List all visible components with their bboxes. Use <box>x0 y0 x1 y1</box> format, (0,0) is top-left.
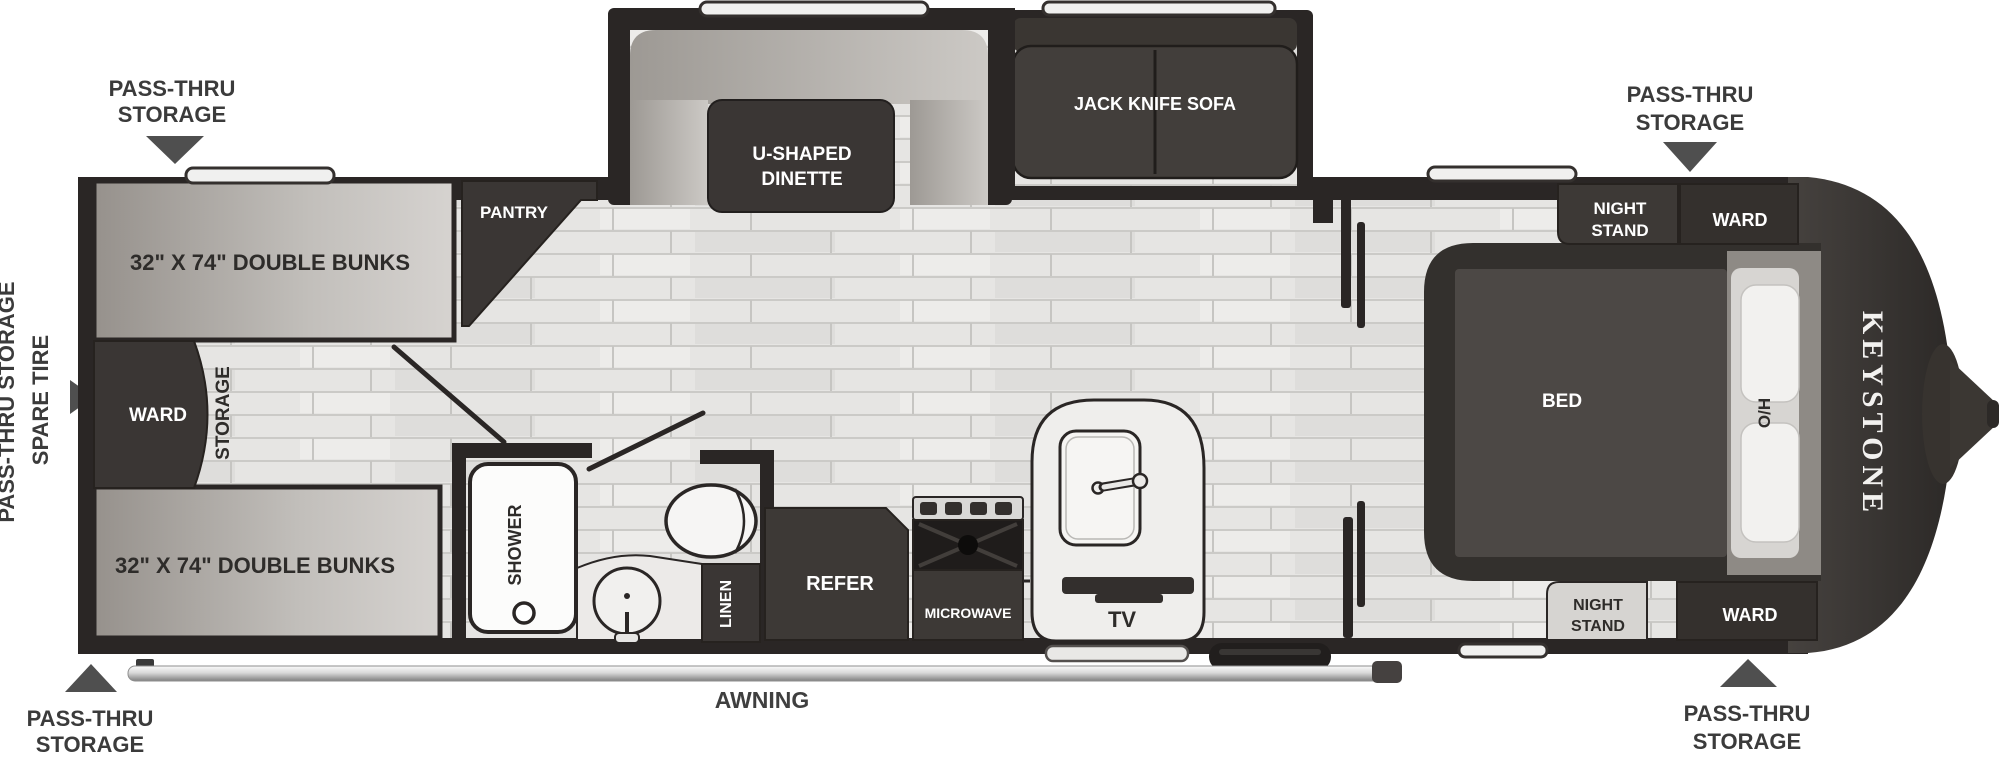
tv-base <box>1095 594 1163 603</box>
window <box>1428 167 1576 181</box>
arrow-up-icon <box>65 664 117 692</box>
callout-pass-thru-top-left: PASS-THRU STORAGE <box>109 76 236 164</box>
pass-thru-top-left-line1: PASS-THRU <box>109 76 236 101</box>
microwave-label: MICROWAVE <box>925 605 1012 621</box>
window <box>700 2 928 16</box>
pass-thru-storage-left-label: PASS-THRU STORAGE <box>0 281 19 522</box>
kitchen-faucet-knob <box>1133 474 1147 488</box>
pass-thru-bottom-left-line1: PASS-THRU <box>27 706 154 731</box>
spare-tire-label: SPARE TIRE <box>28 335 53 465</box>
bunk-top-label: 32" X 74" DOUBLE BUNKS <box>130 250 410 275</box>
callout-pass-thru-top-right: PASS-THRU STORAGE <box>1627 82 1754 172</box>
arrow-up-icon <box>1720 659 1777 687</box>
window <box>1043 2 1275 15</box>
pass-thru-bottom-right-line1: PASS-THRU <box>1684 701 1811 726</box>
awning-label: AWNING <box>715 687 810 713</box>
dinette-label-line1: U-SHAPED <box>752 144 851 165</box>
arrow-down-icon <box>1663 142 1717 172</box>
burner-icon <box>970 502 987 515</box>
night-stand-top-line1: NIGHT <box>1594 199 1648 218</box>
rv-floorplan-diagram: PASS-THRU STORAGE PASS-THRU STORAGE PASS… <box>0 0 2000 758</box>
refer-label: REFER <box>806 573 874 595</box>
pillow <box>1741 285 1799 402</box>
bathroom-wall-top <box>452 443 592 458</box>
bed-mattress <box>1455 269 1727 557</box>
pass-thru-top-left-line2: STORAGE <box>118 102 226 127</box>
shower-label: SHOWER <box>505 504 525 585</box>
hitch-ball <box>1987 400 1999 428</box>
burner-icon <box>920 502 937 515</box>
ward-left-label: WARD <box>129 405 187 426</box>
dinette-bench-left <box>630 100 708 205</box>
tv-screen <box>1062 577 1194 594</box>
entry-step <box>1046 646 1188 661</box>
bunk-bottom-label: 32" X 74" DOUBLE BUNKS <box>115 553 395 578</box>
bedroom-partition-wall <box>1343 517 1353 638</box>
awning-assembly: AWNING <box>128 659 1402 713</box>
night-stand-bottom-line2: STAND <box>1571 618 1625 635</box>
awning-bar <box>128 666 1380 681</box>
sofa-label: JACK KNIFE SOFA <box>1074 94 1236 114</box>
pillow <box>1741 423 1799 542</box>
dinette-bench-top <box>630 30 988 104</box>
pass-thru-top-right-line2: STORAGE <box>1636 110 1744 135</box>
grate-center-icon <box>958 535 978 555</box>
bathroom-wall-left <box>452 443 466 640</box>
ward-bottom-label: WARD <box>1723 605 1778 625</box>
night-stand-bottom-line1: NIGHT <box>1573 597 1623 614</box>
toilet <box>666 485 756 557</box>
awning-bracket-right <box>1372 661 1402 683</box>
wall-stub-after-sofa <box>1313 177 1333 223</box>
pass-thru-bottom-right-line2: STORAGE <box>1693 729 1801 754</box>
overhead-cabinet-label: O/H <box>1755 398 1774 428</box>
wall-between-slides <box>988 8 1015 200</box>
brand-label: KEYSTONE <box>1856 311 1889 517</box>
storage-aisle-label: STORAGE <box>213 366 234 460</box>
bed-label: BED <box>1542 391 1582 412</box>
dinette-label-line2: DINETTE <box>761 169 842 190</box>
pass-thru-bottom-left-line2: STORAGE <box>36 732 144 757</box>
dinette-bench-right <box>910 100 988 205</box>
night-stand-top-line2: STAND <box>1591 221 1648 240</box>
bedroom-partition-wall <box>1341 186 1351 308</box>
tire-highlight <box>1219 649 1321 655</box>
pantry-label: PANTRY <box>480 203 549 222</box>
sofa-slideout: JACK KNIFE SOFA <box>997 10 1313 192</box>
burner-icon <box>945 502 962 515</box>
bedroom-partition-wall <box>1357 222 1365 328</box>
callout-pass-thru-bottom-right: PASS-THRU STORAGE <box>1684 659 1811 754</box>
shower-drain-icon <box>514 603 534 623</box>
window <box>1459 644 1547 657</box>
window <box>186 168 334 183</box>
sink-faucet-base <box>615 633 639 643</box>
arrow-down-icon <box>146 136 204 164</box>
sink-drain-icon <box>624 593 630 599</box>
pass-thru-top-right-line1: PASS-THRU <box>1627 82 1754 107</box>
hitch <box>1922 344 1999 484</box>
dinette-slideout: U-SHAPED DINETTE <box>608 8 1012 212</box>
linen-label: LINEN <box>718 580 735 628</box>
burner-icon <box>995 502 1012 515</box>
floorplan-canvas: PASS-THRU STORAGE PASS-THRU STORAGE PASS… <box>0 0 2000 758</box>
tv-label: TV <box>1108 607 1136 632</box>
ward-top-label: WARD <box>1713 210 1768 230</box>
bedroom-partition-wall <box>1357 501 1365 607</box>
